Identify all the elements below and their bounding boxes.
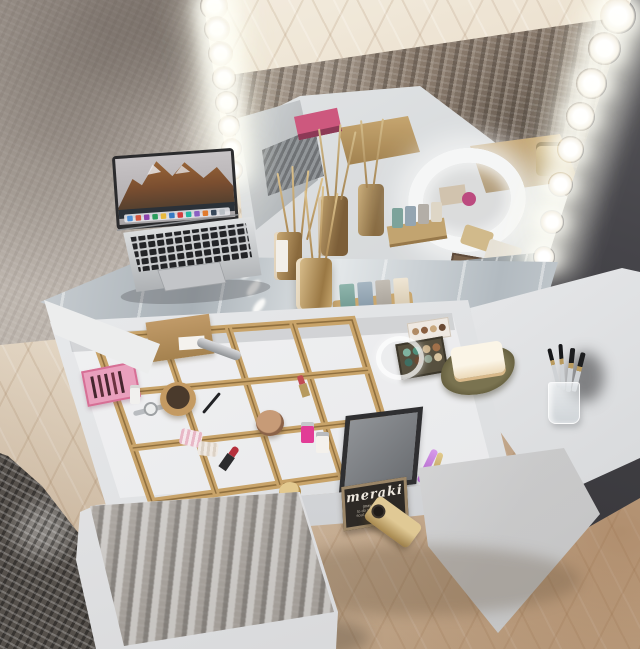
bottle-opening — [369, 502, 389, 522]
laptop-screen-wallpaper — [115, 151, 235, 225]
vanity-room-scene: meraki (may-rah-kee) to do something wit… — [0, 0, 640, 649]
